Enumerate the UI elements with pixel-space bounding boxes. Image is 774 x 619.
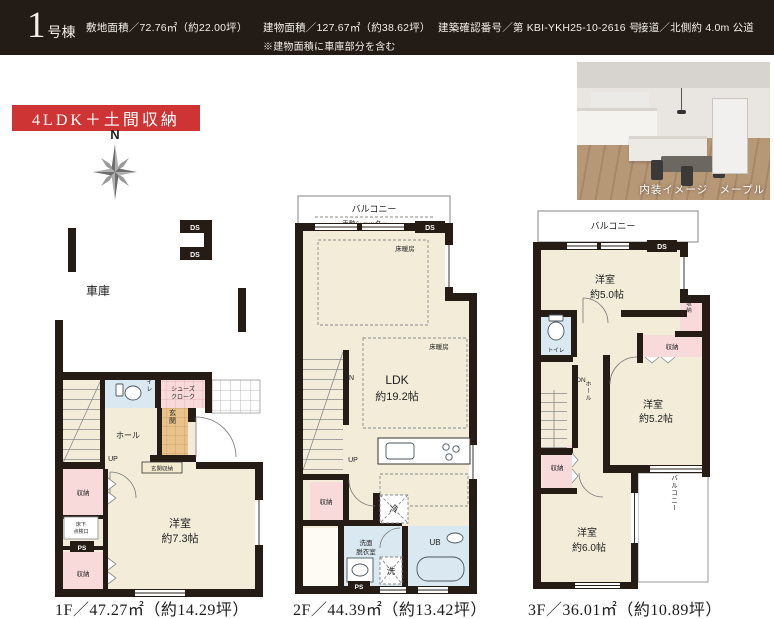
balcony-label: バルコニー — [591, 221, 636, 231]
washer-label: 洗 — [387, 566, 396, 576]
floor-heating-label: 床暖房 — [395, 244, 415, 253]
spec-site-area: 敷地面積／72.76㎡（約22.00坪） — [86, 20, 248, 35]
compass-rose — [93, 144, 137, 200]
underfloor-label: 点検口 — [73, 528, 88, 535]
ldk-size-label: 約19.2帖 — [375, 389, 418, 403]
header-bar: 1号棟 敷地面積／72.76㎡（約22.00坪） 建物面積／127.67㎡（約3… — [0, 0, 774, 55]
ds-label: DS — [190, 252, 200, 259]
entrance-door-arc — [196, 417, 236, 457]
shoe-closet-label: クローク — [171, 394, 195, 401]
toilet-label: トイレ — [145, 372, 152, 393]
room-label: 洋室 — [595, 273, 615, 286]
ps-label: PS — [78, 545, 87, 552]
unit-number: 1 — [27, 5, 46, 46]
storage-label: 収納 — [77, 569, 90, 578]
flyer-page: 1号棟 敷地面積／72.76㎡（約22.00坪） 建物面積／127.67㎡（約3… — [0, 0, 774, 619]
unit-number-block: 1号棟 — [27, 4, 76, 47]
room-size-label: 約6.0帖 — [572, 541, 606, 554]
compass-north-label: N — [110, 127, 119, 142]
ldk-label: LDK — [385, 373, 408, 387]
photo-upper-cabinets — [591, 92, 649, 109]
balcony-label: バルコニー — [352, 204, 397, 214]
up-label: UP — [348, 457, 358, 464]
spec-building-note: ※建物面積に車庫部分を含む — [263, 38, 396, 53]
storage-label: 収納 — [551, 463, 564, 472]
photo-chair — [651, 160, 663, 180]
vanity — [347, 558, 373, 582]
entrance-porch — [212, 380, 260, 413]
shoe-closet-label: シューズ — [171, 385, 195, 393]
room-size-label: 約5.0帖 — [590, 288, 624, 301]
fridge-label: 冷 — [389, 503, 398, 514]
caption-2f: 2F／44.39㎡（約13.42坪） — [293, 596, 487, 619]
washer-space: 洗 — [380, 557, 402, 584]
f2-side-space — [303, 528, 338, 586]
spec-confirmation-number: 建築確認番号／第 KBI-YKH25-10-2616 号 — [438, 20, 640, 35]
unit-bath-label: UB — [429, 538, 440, 547]
hall-label: ホール — [116, 431, 140, 440]
photo-ceiling — [577, 62, 770, 88]
dn-label: DN — [344, 375, 354, 382]
storage-label: 収納 — [666, 342, 679, 351]
room-label: 洋室 — [643, 398, 663, 411]
underfloor-hatch — [64, 517, 98, 539]
spec-building-area: 建物面積／127.67㎡（約38.62坪） — [263, 20, 431, 35]
caption-3f: 3F／36.01㎡（約10.89坪） — [528, 596, 722, 619]
ds-label: DS — [657, 244, 667, 251]
caption-1f: 1F／47.27㎡（約14.29坪） — [55, 596, 249, 619]
up-label: UP — [108, 456, 118, 463]
room-size-label: 約7.3帖 — [161, 531, 198, 545]
photo-caption: 内装イメージ メープル — [639, 182, 765, 197]
washroom-label: 脱衣室 — [356, 547, 376, 556]
storage-label: 収納 — [77, 488, 90, 497]
garage-label: 車庫 — [86, 284, 110, 298]
washroom-label: 洗面 — [360, 538, 374, 547]
garage-zone: DS DS 車庫 — [68, 220, 246, 332]
underfloor-label: 床下 — [76, 521, 86, 528]
floorplan-3f: バルコニー バルコニー — [525, 205, 725, 605]
ps-label: PS — [355, 584, 364, 591]
photo-pendant-light — [681, 88, 682, 110]
toilet-icon — [548, 315, 564, 340]
toilet-label: トイレ — [548, 348, 565, 354]
unit-suffix: 号棟 — [48, 26, 76, 41]
genkan-label: 玄関 — [169, 408, 177, 425]
hall-label: ホール — [584, 381, 591, 402]
room-label: 洋室 — [169, 516, 191, 530]
ds-label: DS — [425, 225, 435, 232]
shoe-closet — [161, 380, 205, 408]
ds-label: DS — [190, 225, 200, 232]
genkan-storage-label: 玄関収納 — [151, 465, 174, 473]
room-size-label: 約5.2帖 — [639, 412, 673, 425]
floorplan-2f: バルコニー 手動シャッター 床暖房 床暖房 — [285, 190, 485, 605]
kitchen-counter — [378, 438, 470, 464]
storage-label: 収納 — [685, 300, 692, 314]
storage-label: 収納 — [320, 497, 333, 506]
photo-door — [712, 98, 748, 174]
spec-road: 接道／北側約 4.0m 公道 — [638, 20, 754, 35]
room-label: 洋室 — [577, 526, 597, 539]
bath-sink — [447, 533, 463, 543]
refrigerator-space: 冷 — [380, 495, 408, 523]
floor-heating-label: 床暖房 — [429, 342, 449, 351]
duct-space: DS DS — [180, 220, 212, 260]
compass-icon: N — [84, 126, 146, 204]
interior-photo: 内装イメージ メープル — [577, 62, 770, 200]
floorplan-1f: DS DS 車庫 — [40, 210, 270, 605]
